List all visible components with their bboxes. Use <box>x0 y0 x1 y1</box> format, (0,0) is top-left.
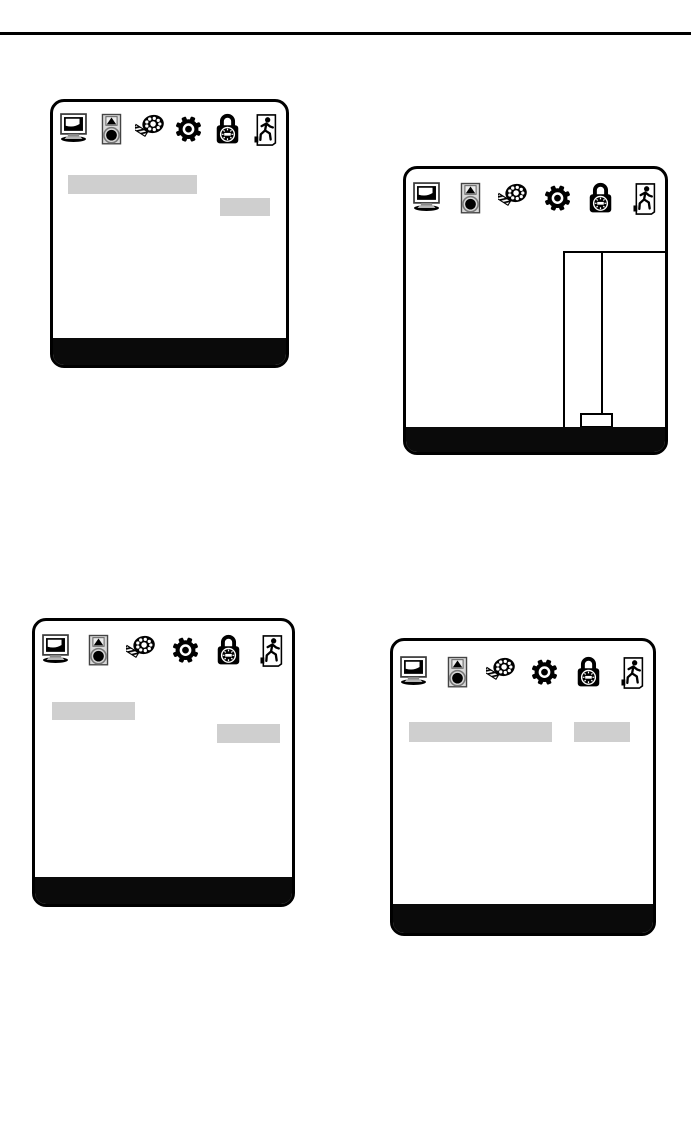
gear-icon[interactable] <box>170 631 201 671</box>
color-palette-icon[interactable] <box>135 110 166 150</box>
exit-icon[interactable] <box>250 110 281 150</box>
monitor-icon[interactable] <box>411 179 442 219</box>
osd-menu-bar <box>53 110 286 150</box>
speaker-icon[interactable] <box>442 653 473 693</box>
lock-icon[interactable] <box>213 631 244 671</box>
monitor-icon[interactable] <box>58 110 89 150</box>
osd-footer-bar <box>393 904 653 933</box>
value-box <box>574 722 630 742</box>
osd-panel-bottom-right <box>390 638 656 936</box>
osd-footer-bar <box>35 877 292 904</box>
gear-icon[interactable] <box>173 110 204 150</box>
osd-menu-bar <box>393 653 653 693</box>
speaker-icon[interactable] <box>455 179 486 219</box>
color-palette-icon[interactable] <box>126 631 157 671</box>
osd-panel-bottom-left <box>32 618 295 907</box>
manual-page <box>0 0 691 1123</box>
exit-icon[interactable] <box>629 179 660 219</box>
gear-icon[interactable] <box>529 653 560 693</box>
osd-footer-bar <box>406 427 665 452</box>
selected-item-highlight[interactable] <box>52 702 135 720</box>
selected-item-highlight[interactable] <box>68 175 197 194</box>
selected-item-highlight[interactable] <box>409 722 552 742</box>
monitor-icon[interactable] <box>40 631 71 671</box>
value-box <box>217 724 280 743</box>
osd-footer-bar <box>53 338 286 365</box>
speaker-icon[interactable] <box>96 110 127 150</box>
color-palette-icon[interactable] <box>498 179 529 219</box>
slider-track <box>601 252 603 414</box>
lock-icon[interactable] <box>585 179 616 219</box>
osd-menu-bar <box>406 179 665 219</box>
lock-icon[interactable] <box>212 110 243 150</box>
speaker-icon[interactable] <box>83 631 114 671</box>
osd-panel-top-left <box>50 99 289 368</box>
osd-panel-top-right <box>403 166 668 455</box>
lock-icon[interactable] <box>573 653 604 693</box>
slider-handle[interactable] <box>580 413 613 428</box>
page-header-rule <box>0 32 691 35</box>
slider-panel <box>563 251 665 427</box>
osd-menu-bar <box>35 631 292 671</box>
exit-icon[interactable] <box>617 653 648 693</box>
gear-icon[interactable] <box>542 179 573 219</box>
exit-icon[interactable] <box>256 631 287 671</box>
color-palette-icon[interactable] <box>486 653 517 693</box>
value-box <box>220 198 270 216</box>
monitor-icon[interactable] <box>398 653 429 693</box>
